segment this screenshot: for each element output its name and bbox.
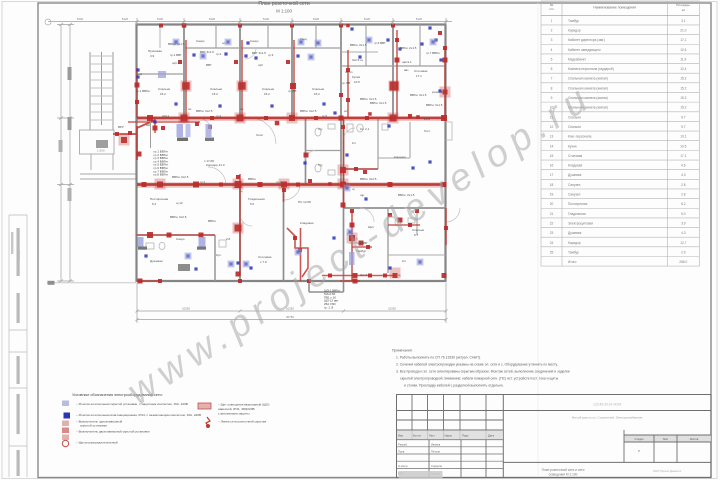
svg-text:ВВГнг 3х1.5: ВВГнг 3х1.5 (370, 101, 387, 105)
svg-text:15.2: 15.2 (314, 92, 320, 96)
svg-text:розет. 2: розет. 2 (432, 90, 443, 94)
svg-text:3х1.5: 3х1.5 (360, 273, 368, 277)
svg-text:5: 5 (551, 58, 553, 62)
svg-text:123.45-2014-ЭОМ: 123.45-2014-ЭОМ (593, 403, 621, 407)
svg-text:ВВГнг: ВВГнг (248, 177, 256, 181)
svg-text:21: 21 (550, 212, 554, 216)
svg-text:Кабинет заведующего: Кабинет заведующего (568, 48, 601, 52)
svg-text:15.2: 15.2 (212, 92, 218, 96)
svg-text:п/п: п/п (549, 7, 554, 11)
svg-text:Кухня: Кухня (352, 75, 360, 79)
svg-text:5120: 5120 (77, 17, 84, 21)
svg-text:10250: 10250 (388, 307, 396, 311)
svg-text:15.2: 15.2 (680, 106, 686, 110)
svg-text:16: 16 (550, 164, 554, 168)
svg-text:Кух.: Кух. (216, 253, 222, 257)
svg-text:Лист: Лист (429, 434, 436, 438)
svg-text:Душевая: Душевая (568, 173, 582, 177)
svg-text:14: 14 (550, 144, 554, 148)
svg-text:5120: 5120 (157, 17, 164, 21)
svg-text:Постирочная: Постирочная (568, 202, 588, 206)
svg-text:Кладовая: Кладовая (300, 221, 314, 225)
svg-text:4.3: 4.3 (681, 231, 686, 235)
svg-text:Разраб.: Разраб. (398, 442, 408, 446)
svg-text:10250: 10250 (182, 307, 190, 311)
svg-text:Душевая: Душевая (150, 259, 163, 263)
svg-text:– Линия сети розеточной скрыта: – Линия сети розеточной скрытая (218, 420, 266, 424)
svg-text:гр. 1..8: гр. 1..8 (324, 306, 333, 310)
svg-text:эл.: эл. (188, 107, 192, 111)
svg-text:15.2: 15.2 (680, 96, 686, 100)
svg-text:План розеточной сети: План розеточной сети (258, 0, 309, 7)
svg-text:Кладовая: Кладовая (568, 164, 583, 168)
svg-text:286.0: 286.0 (679, 260, 687, 264)
svg-text:Душевая: Душевая (568, 231, 582, 235)
svg-text:ВВГнг 3х1.5: ВВГнг 3х1.5 (168, 42, 185, 46)
svg-text:гр.3: гр.3 (268, 53, 274, 57)
svg-text:Коридор: Коридор (568, 241, 581, 245)
svg-text:С/у: С/у (318, 163, 323, 167)
svg-text:Дата: Дата (488, 434, 494, 438)
svg-text:5120: 5120 (416, 17, 423, 21)
svg-text:23: 23 (550, 231, 554, 235)
svg-text:гр.3: гр.3 (216, 114, 221, 118)
svg-text:№док.: №док. (445, 435, 453, 438)
svg-text:ВВГ: ВВГ (206, 63, 212, 67)
svg-text:ВВГнг 3х2.5: ВВГнг 3х2.5 (170, 215, 187, 219)
svg-text:Пров.: Пров. (398, 450, 405, 454)
svg-text:– Щиток распределительный: – Щиток распределительный (76, 441, 118, 445)
svg-text:19: 19 (550, 193, 554, 197)
svg-text:5120: 5120 (313, 17, 320, 21)
svg-text:гр.8 ВВГнг: гр.8 ВВГнг (154, 173, 170, 177)
svg-text:Примечания:: Примечания: (392, 349, 413, 353)
svg-text:Гост.: Гост. (424, 129, 431, 133)
svg-text:Наименование помещения: Наименование помещения (593, 6, 636, 10)
svg-text:1.560: 1.560 (97, 149, 105, 153)
svg-text:22: 22 (550, 222, 554, 226)
svg-text:ВВГнг: ВВГнг (208, 219, 216, 223)
svg-text:Кабинет директора (зав.): Кабинет директора (зав.) (568, 38, 605, 42)
svg-text:Сануз.: Сануз. (176, 237, 185, 241)
svg-text:Итого: Итого (568, 260, 577, 264)
svg-text:11.9: 11.9 (680, 58, 686, 62)
svg-text:Гладильная: Гладильная (568, 212, 586, 216)
svg-text:3.9: 3.9 (681, 222, 686, 226)
svg-text:10.5: 10.5 (354, 80, 360, 84)
svg-text:гр.6 ВВГ: гр.6 ВВГ (374, 41, 386, 45)
svg-text:эл.: эл. (344, 109, 348, 113)
svg-text:Стадия: Стадия (634, 437, 644, 441)
svg-text:гр.1 ВВГ: гр.1 ВВГ (170, 53, 182, 57)
svg-text:и стояки. Прокладку кабелей с: и стояки. Прокладку кабелей с разделкой … (404, 384, 504, 388)
svg-text:ВВГнг 2х1.5: ВВГнг 2х1.5 (400, 46, 417, 50)
svg-text:2: 2 (551, 29, 553, 33)
svg-text:15.2: 15.2 (680, 77, 686, 81)
svg-text:Ком. персонала: Ком. персонала (568, 135, 592, 139)
svg-text:щ1: щ1 (138, 72, 142, 76)
svg-text:Сидоров: Сидоров (431, 464, 442, 468)
svg-text:2.8: 2.8 (681, 193, 686, 197)
svg-text:2. Сечения кабелей электропров: 2. Сечения кабелей электропроводки указа… (396, 363, 558, 367)
svg-text:Комната персонала (гардероб): Комната персонала (гардероб) (568, 67, 614, 71)
svg-text:Спальня: Спальня (210, 87, 222, 91)
svg-text:Кл.: Кл. (352, 141, 356, 145)
svg-text:12.7: 12.7 (680, 241, 686, 245)
svg-text:4.6: 4.6 (681, 164, 686, 168)
svg-text:15.2: 15.2 (680, 86, 686, 90)
svg-text:12.4: 12.4 (680, 67, 686, 71)
svg-text:ВВГнг 3х2.5: ВВГнг 3х2.5 (300, 109, 317, 113)
svg-text:Листов: Листов (690, 437, 699, 441)
svg-text:ВВГнг 3х1.5: ВВГнг 3х1.5 (350, 43, 367, 47)
svg-text:Постирочная: Постирочная (150, 197, 169, 201)
svg-text:скрытой установки: скрытой установки (80, 424, 107, 428)
svg-text:Холл: Холл (256, 133, 263, 137)
svg-text:Н.контр.: Н.контр. (398, 464, 409, 468)
svg-text:Лист: Лист (663, 437, 670, 441)
svg-text:9.7: 9.7 (681, 125, 686, 129)
svg-text:15.2: 15.2 (264, 92, 270, 96)
svg-text:Спальня: Спальня (312, 87, 324, 91)
svg-text:Кл.: Кл. (402, 259, 406, 263)
svg-text:– Щит освещения квартирный (ЩО: – Щит освещения квартирный (ЩО) (218, 403, 269, 407)
svg-text:гр. ВВ: гр. ВВ (288, 89, 296, 93)
svg-text:гр.7 ВВГнг: гр.7 ВВГнг (426, 51, 440, 55)
svg-text:м²: м² (682, 8, 685, 12)
svg-text:Спальня: Спальня (158, 87, 170, 91)
svg-text:10.5: 10.5 (680, 144, 686, 148)
svg-text:25: 25 (550, 250, 554, 254)
svg-text:6.2: 6.2 (152, 202, 157, 206)
svg-text:– Розетка штепсельная влагозащ: – Розетка штепсельная влагозащищённая, I… (76, 413, 201, 417)
svg-text:навесной, IP31, 380/220В: навесной, IP31, 380/220В (218, 407, 255, 411)
svg-text:5120: 5120 (263, 17, 270, 21)
svg-text:Санузел: Санузел (568, 183, 581, 187)
svg-text:4: 4 (551, 48, 553, 52)
svg-text:17.1: 17.1 (416, 74, 422, 78)
svg-text:17: 17 (550, 173, 554, 177)
svg-text:2.8: 2.8 (681, 183, 686, 187)
svg-text:15: 15 (550, 154, 554, 158)
svg-text:щр: щр (360, 193, 364, 197)
svg-text:гр.4: гр.4 (276, 180, 281, 184)
svg-text:7: 7 (551, 77, 553, 81)
svg-text:21.0: 21.0 (680, 29, 686, 33)
svg-text:24: 24 (550, 241, 554, 245)
svg-text:3.1: 3.1 (681, 19, 686, 23)
svg-text:5.0: 5.0 (681, 212, 686, 216)
svg-text:3. Все провода и эл. сети смон: 3. Все провода и эл. сети смонтированы с… (396, 370, 570, 374)
svg-text:– Розетка штепсельная скрытой: – Розетка штепсельная скрытой установки,… (76, 402, 188, 406)
svg-text:эл.: эл. (240, 107, 244, 111)
svg-text:Изм.: Изм. (398, 434, 404, 438)
svg-text:Спальня: Спальня (262, 87, 274, 91)
svg-text:Столовая: Столовая (568, 154, 583, 158)
svg-text:Кл. 2.1: Кл. 2.1 (360, 127, 370, 131)
svg-text:ВВГнг 3х1.5: ВВГнг 3х1.5 (426, 103, 443, 107)
svg-text:ВВГ 3х1.5: ВВГ 3х1.5 (200, 50, 214, 54)
svg-text:20: 20 (550, 202, 554, 206)
svg-text:Тамбур: Тамбур (568, 19, 579, 23)
svg-text:эл.: эл. (222, 41, 226, 45)
svg-text:гр. ВВ: гр. ВВ (342, 81, 350, 85)
svg-text:2.8: 2.8 (226, 237, 231, 241)
svg-text:Иванов: Иванов (431, 442, 441, 446)
svg-text:освещения М 1:100: освещения М 1:100 (549, 473, 578, 477)
svg-text:10.1: 10.1 (680, 135, 686, 139)
svg-text:Гладильная: Гладильная (248, 197, 265, 201)
svg-text:Столовая: Столовая (258, 255, 272, 259)
svg-text:ООО Проект-Девелоп: ООО Проект-Девелоп (653, 469, 682, 473)
svg-text:ВРУ: ВРУ (118, 125, 124, 129)
svg-text:Сануз.: Сануз. (250, 39, 259, 43)
svg-text:Кухня: Кухня (568, 144, 577, 148)
svg-text:3: 3 (551, 38, 553, 42)
svg-text:щита 1: щита 1 (402, 60, 412, 64)
svg-text:щO-1: щO-1 (172, 61, 180, 65)
svg-text:Тамбур: Тамбур (568, 250, 579, 254)
svg-text:5120: 5120 (364, 17, 371, 21)
svg-text:Коридор 21.0: Коридор 21.0 (206, 163, 225, 167)
svg-text:5120: 5120 (122, 17, 129, 21)
svg-text:9.7: 9.7 (681, 115, 686, 119)
svg-text:гр.2: гр.2 (216, 52, 222, 56)
svg-text:Гард.: Гард. (300, 37, 307, 41)
svg-text:17.1: 17.1 (680, 38, 686, 42)
svg-text:Медкабинет: Медкабинет (568, 58, 587, 62)
svg-text:Подп.: Подп. (462, 434, 469, 438)
svg-text:Электрощитовая: Электрощитовая (568, 222, 593, 226)
svg-text:щO: щO (258, 63, 263, 67)
svg-text:3.9: 3.9 (150, 54, 155, 58)
svg-text:гр.5: гр.5 (322, 114, 327, 118)
svg-text:ВВГнг 3х2.5: ВВГнг 3х2.5 (196, 109, 213, 113)
svg-text:ВВГнг 3х1.5: ВВГнг 3х1.5 (360, 97, 377, 101)
svg-text:Площадь,: Площадь, (676, 3, 690, 7)
svg-text:18: 18 (550, 183, 554, 187)
svg-text:15.2: 15.2 (160, 92, 166, 96)
svg-text:3х2.5 щ: 3х2.5 щ (352, 58, 363, 62)
svg-text:ВВГнг 3х2.5: ВВГнг 3х2.5 (172, 175, 189, 179)
svg-text:скрытой электропроводкой. Вним: скрытой электропроводкой. Внимание: кабе… (400, 377, 559, 381)
svg-text:6.2: 6.2 (681, 202, 686, 206)
svg-text:Коридор: Коридор (394, 155, 406, 159)
svg-text:щ 12: щ 12 (176, 201, 183, 205)
svg-text:гр.1 ВВГнг: гр.1 ВВГнг (136, 89, 150, 93)
svg-text:4.3: 4.3 (681, 173, 686, 177)
svg-text:авт.: авт. (404, 68, 409, 72)
svg-text:12.6: 12.6 (680, 48, 686, 52)
svg-text:ВВГнг 3х2.5: ВВГнг 3х2.5 (360, 177, 377, 181)
svg-text:1: 1 (551, 19, 553, 23)
svg-text:ВВГнг 3х1.5: ВВГнг 3х1.5 (410, 93, 427, 97)
svg-text:С/у: С/у (318, 127, 323, 131)
svg-text:эл.пл.: эл.пл. (345, 70, 353, 74)
svg-text:Р: Р (638, 449, 640, 453)
svg-text:6: 6 (551, 67, 553, 71)
svg-text:ВВГ 3х1.5: ВВГ 3х1.5 (252, 51, 266, 55)
svg-text:М 1:100: М 1:100 (276, 9, 292, 14)
svg-text:Сануз.: Сануз. (196, 39, 205, 43)
svg-text:8: 8 (551, 86, 553, 90)
svg-text:ПС 12.08: ПС 12.08 (298, 200, 311, 204)
svg-text:– Выключатель двухклавишный ск: – Выключатель двухклавишный скрытой уста… (76, 430, 150, 434)
svg-text:ЩО-1: ЩО-1 (162, 114, 170, 118)
svg-text:Прихожая: Прихожая (148, 49, 162, 53)
svg-text:Кол.уч: Кол.уч (413, 434, 422, 438)
svg-text:14.6: 14.6 (424, 117, 430, 121)
svg-text:Столовая: Столовая (414, 69, 428, 73)
svg-text:Петров: Петров (431, 450, 441, 454)
svg-text:17.1: 17.1 (680, 154, 686, 158)
svg-text:Жилой дом по ул. Строителей. Э: Жилой дом по ул. Строителей. Электроснаб… (572, 416, 643, 420)
svg-text:Санузел: Санузел (568, 193, 581, 197)
svg-text:с автоматами защиты: с автоматами защиты (218, 412, 250, 416)
svg-text:5120: 5120 (209, 17, 216, 21)
svg-text:гр.2: гр.2 (200, 180, 205, 184)
svg-text:Коридор: Коридор (568, 29, 581, 33)
svg-text:1. Работы выполнить по СП 76.1: 1. Работы выполнить по СП 76.13330 (акту… (396, 356, 481, 360)
svg-text:5.0: 5.0 (250, 202, 255, 206)
svg-text:План розеточной сети и сети: План розеточной сети и сети (542, 468, 585, 472)
svg-text:х 7.9: х 7.9 (260, 260, 267, 264)
svg-text:2.9: 2.9 (681, 250, 686, 254)
